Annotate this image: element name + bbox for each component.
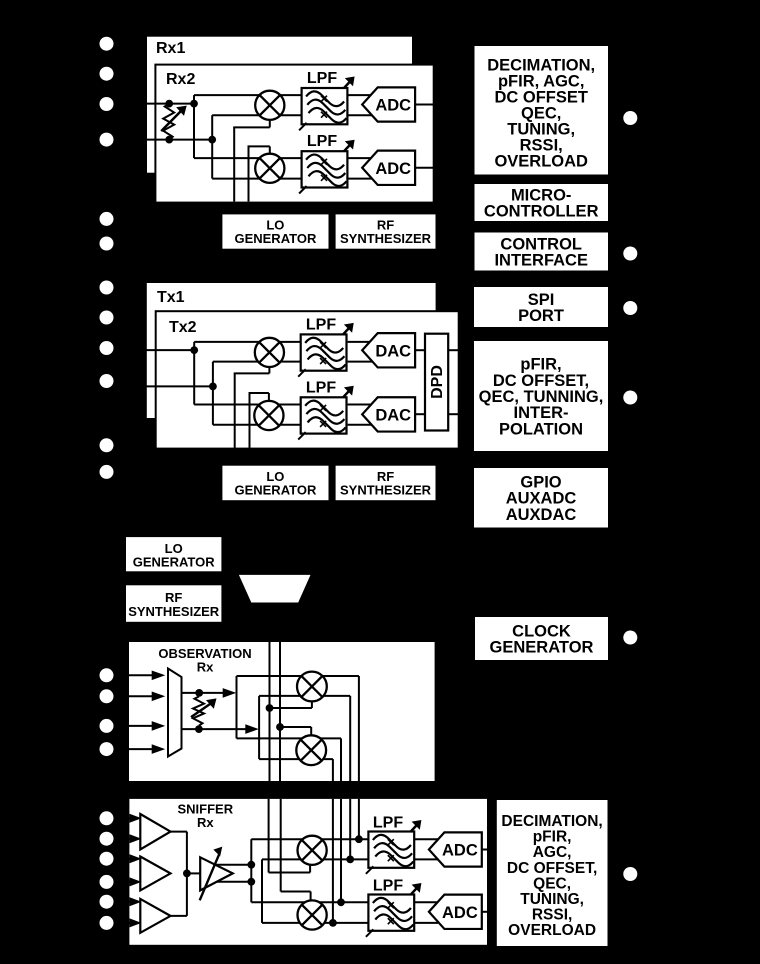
svg-text:GPIO: GPIO	[520, 473, 561, 491]
svg-text:Rx: Rx	[197, 815, 214, 830]
svg-text:SYNTHESIZER: SYNTHESIZER	[340, 483, 432, 498]
svg-text:LPF: LPF	[306, 317, 336, 334]
svg-text:LPF: LPF	[306, 380, 336, 397]
svg-text:LPF: LPF	[373, 815, 403, 832]
svg-text:GENERATOR: GENERATOR	[490, 639, 594, 657]
svg-text:ADC: ADC	[442, 842, 478, 860]
svg-text:CONTROLLER: CONTROLLER	[484, 203, 599, 221]
svg-text:MICRO-: MICRO-	[511, 186, 572, 204]
svg-text:GENERATOR: GENERATOR	[234, 231, 316, 246]
svg-text:RSSI,: RSSI,	[532, 907, 572, 924]
svg-text:CONTROL: CONTROL	[500, 235, 582, 253]
svg-text:INTERFACE: INTERFACE	[494, 252, 588, 270]
svg-text:DAC: DAC	[375, 342, 411, 360]
svg-text:Tx1: Tx1	[157, 289, 185, 306]
svg-text:POLATION: POLATION	[499, 420, 583, 438]
svg-text:AUXADC: AUXADC	[506, 490, 577, 508]
svg-text:Rx: Rx	[197, 660, 214, 675]
svg-text:Rx2: Rx2	[166, 71, 195, 88]
svg-text:LPF: LPF	[307, 133, 337, 150]
svg-text:ADC: ADC	[375, 97, 411, 115]
svg-text:DPD: DPD	[429, 365, 446, 399]
svg-text:LPF: LPF	[373, 878, 403, 895]
svg-text:ADC: ADC	[375, 160, 411, 178]
svg-text:SPI: SPI	[528, 291, 555, 309]
svg-text:OVERLOAD: OVERLOAD	[508, 922, 596, 939]
svg-text:GENERATOR: GENERATOR	[234, 483, 316, 498]
svg-text:LPF: LPF	[307, 70, 337, 87]
svg-text:DC OFFSET,: DC OFFSET,	[507, 860, 597, 877]
svg-text:DAC: DAC	[375, 406, 411, 424]
svg-text:AGC,: AGC,	[533, 844, 572, 861]
svg-text:OVERLOAD: OVERLOAD	[494, 153, 588, 171]
svg-text:CLOCK: CLOCK	[512, 622, 571, 640]
svg-text:QEC,: QEC,	[533, 875, 571, 892]
svg-text:Tx2: Tx2	[169, 319, 197, 336]
svg-text:SYNTHESIZER: SYNTHESIZER	[128, 604, 220, 619]
svg-text:PORT: PORT	[518, 307, 564, 325]
svg-text:pFIR,: pFIR,	[533, 829, 572, 846]
svg-text:AUXDAC: AUXDAC	[506, 506, 577, 524]
svg-text:GENERATOR: GENERATOR	[133, 555, 215, 570]
svg-text:Rx1: Rx1	[156, 40, 185, 57]
svg-text:SYNTHESIZER: SYNTHESIZER	[340, 231, 432, 246]
svg-text:TUNING,: TUNING,	[520, 891, 584, 908]
svg-text:ADC: ADC	[442, 904, 478, 922]
svg-text:DECIMATION,: DECIMATION,	[501, 813, 602, 830]
